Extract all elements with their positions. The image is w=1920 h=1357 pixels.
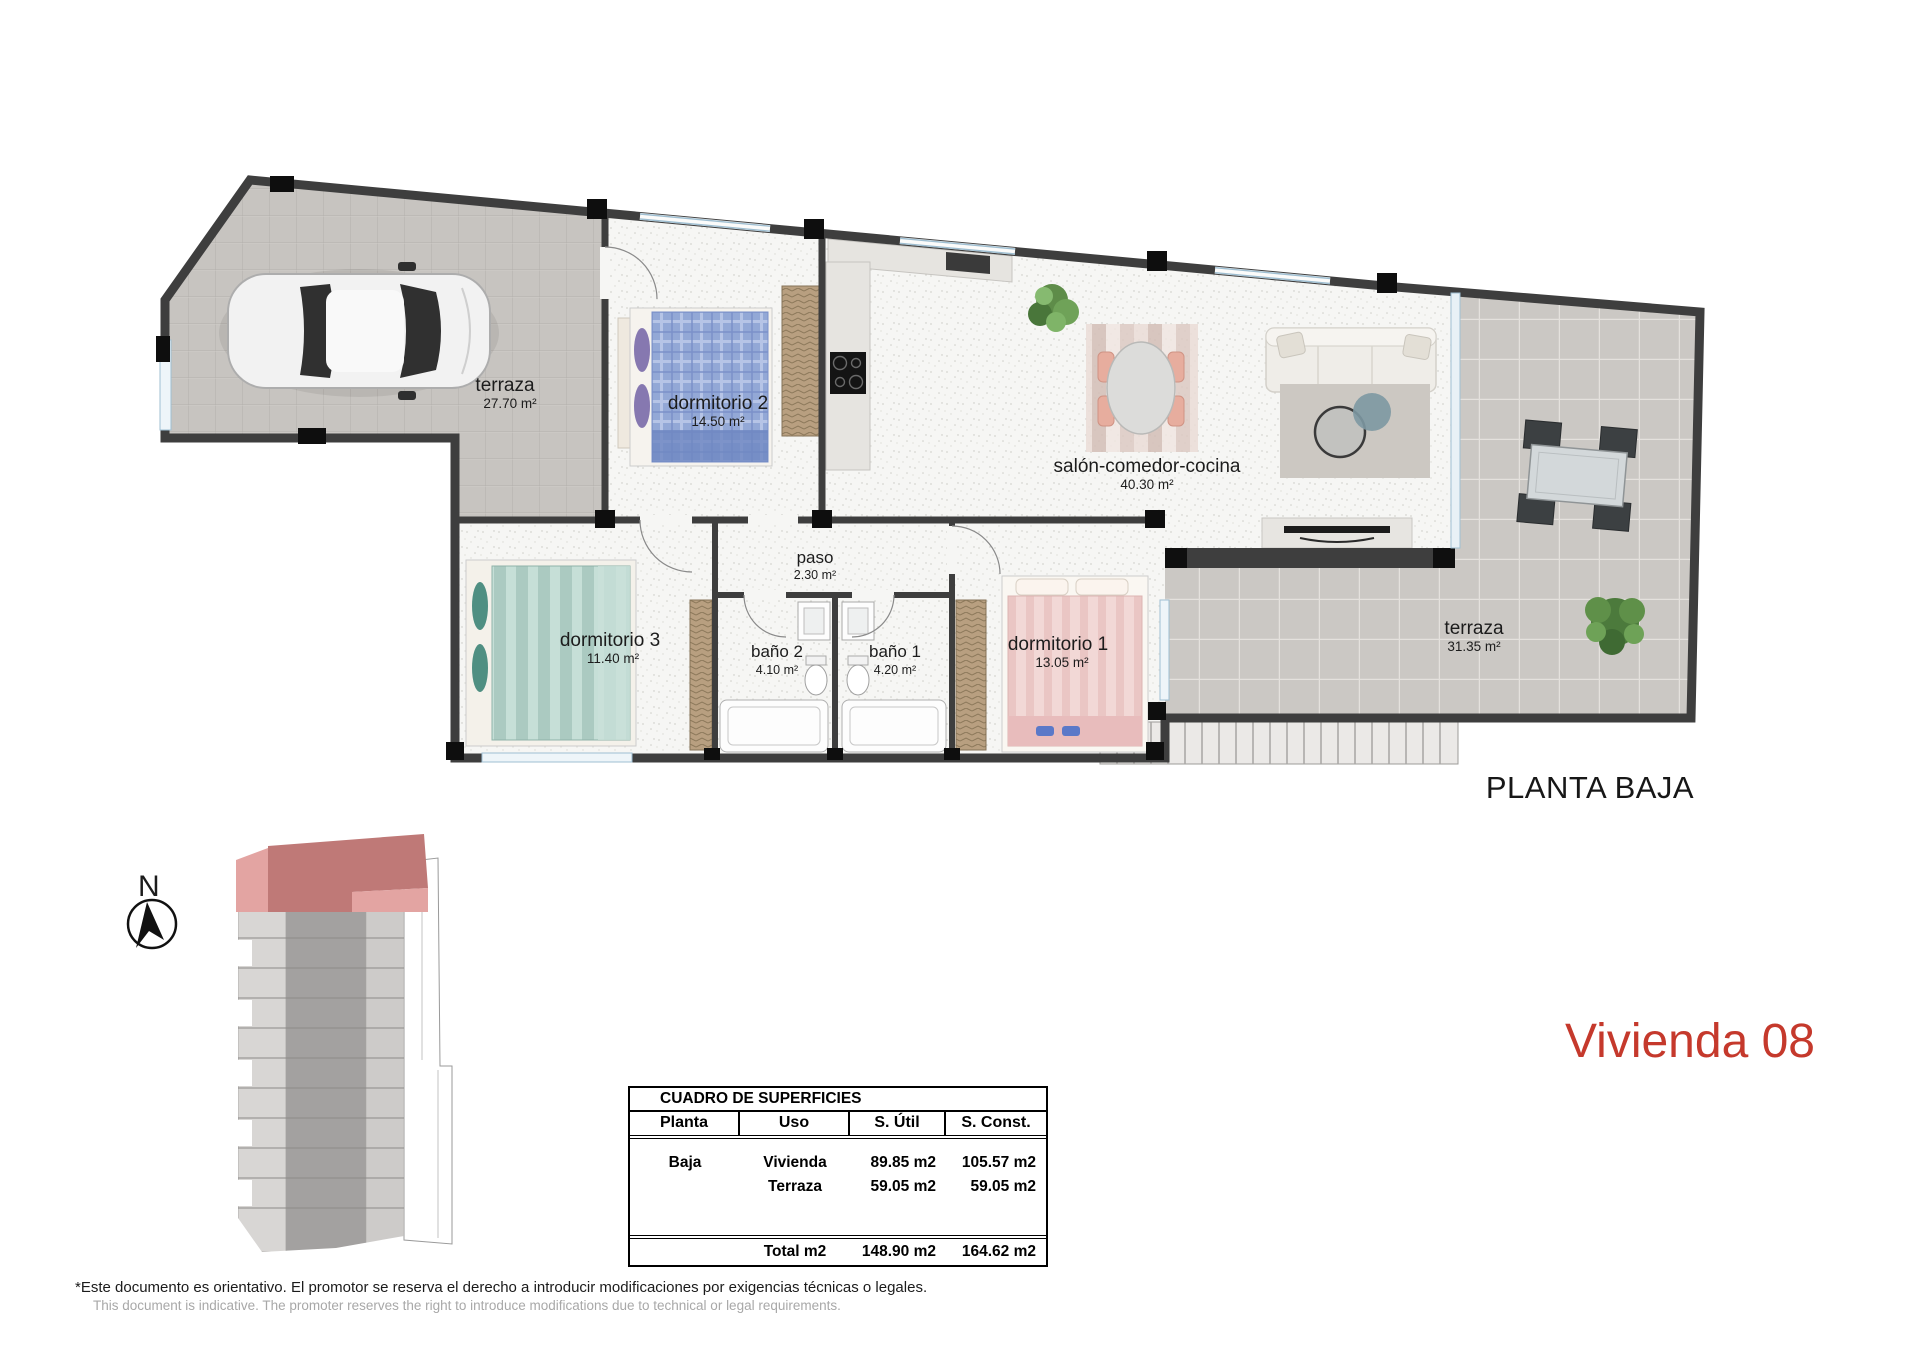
cell-uso: Terraza (740, 1175, 850, 1199)
surfaces-table-total-row: Total m2 148.90 m2 164.62 m2 (630, 1235, 1046, 1265)
label-bano1-area: 4.20 m² (874, 663, 916, 677)
label-bano1-name: baño 1 (869, 642, 921, 661)
floor-plan: terraza 27.70 m² dormitorio 2 14.50 m² s… (156, 176, 1700, 764)
label-dormitorio3-area: 11.40 m² (587, 651, 640, 666)
header-sutil: S. Útil (850, 1112, 946, 1135)
label-salon-name: salón-comedor-cocina (1054, 456, 1241, 477)
cell-planta: Baja (630, 1151, 740, 1175)
dining-table-set (1098, 342, 1184, 434)
surfaces-table-header: Planta Uso S. Útil S. Const. (630, 1112, 1046, 1139)
sofa (1266, 328, 1436, 392)
total-util: 148.90 m2 (850, 1243, 946, 1261)
wardrobe-dormitorio3 (690, 600, 712, 750)
label-terraza-garage-area: 27.70 m² (483, 396, 537, 411)
wardrobe-dormitorio1 (956, 600, 986, 750)
cell-util: 59.05 m2 (850, 1175, 946, 1199)
plan-title: PLANTA BAJA (1470, 770, 1710, 806)
surfaces-table: CUADRO DE SUPERFICIES Planta Uso S. Útil… (628, 1086, 1048, 1267)
label-dormitorio2-area: 14.50 m² (691, 414, 745, 429)
unit-title: Vivienda 08 (1530, 1014, 1850, 1069)
cell-util: 89.85 m2 (850, 1151, 946, 1175)
disclaimer-es: *Este documento es orientativo. El promo… (75, 1279, 927, 1296)
label-paso-area: 2.30 m² (794, 568, 836, 582)
label-dormitorio1-name: dormitorio 1 (1008, 634, 1108, 655)
label-terraza-right-area: 31.35 m² (1447, 639, 1501, 654)
north-label: N (138, 870, 160, 903)
disclaimer-en: This document is indicative. The promote… (93, 1298, 927, 1313)
cell-const: 105.57 m2 (946, 1151, 1046, 1175)
label-dormitorio1-area: 13.05 m² (1035, 655, 1089, 670)
site-building-strip (238, 905, 404, 1252)
label-paso-name: paso (797, 548, 834, 567)
header-sconst: S. Const. (946, 1112, 1046, 1135)
north-compass: N (128, 870, 176, 948)
total-label: Total m2 (740, 1243, 850, 1261)
table-row: Terraza 59.05 m2 59.05 m2 (630, 1175, 1046, 1199)
page-root: terraza 27.70 m² dormitorio 2 14.50 m² s… (0, 0, 1920, 1357)
table-row: Baja Vivienda 89.85 m2 105.57 m2 (630, 1151, 1046, 1175)
label-bano2-name: baño 2 (751, 642, 803, 661)
total-const: 164.62 m2 (946, 1243, 1046, 1261)
tv-wall (1165, 548, 1455, 568)
label-dormitorio2-name: dormitorio 2 (668, 393, 768, 414)
header-planta: Planta (630, 1112, 740, 1135)
cell-uso: Vivienda (740, 1151, 850, 1175)
tv-console (1262, 518, 1412, 548)
bed-dormitorio2 (618, 308, 772, 466)
side-table (1353, 393, 1391, 431)
surfaces-table-title: CUADRO DE SUPERFICIES (630, 1088, 1046, 1112)
cell-const: 59.05 m2 (946, 1175, 1046, 1199)
disclaimer: *Este documento es orientativo. El promo… (75, 1279, 927, 1313)
car (219, 262, 499, 400)
label-terraza-right-name: terraza (1444, 618, 1504, 639)
label-dormitorio3-name: dormitorio 3 (560, 630, 660, 651)
header-uso: Uso (740, 1112, 850, 1135)
label-bano2-area: 4.10 m² (756, 663, 798, 677)
surfaces-table-body: Baja Vivienda 89.85 m2 105.57 m2 Terraza… (630, 1139, 1046, 1235)
wardrobe-dormitorio2 (782, 286, 820, 436)
site-plot-outline (404, 858, 452, 1244)
site-highlighted-unit (236, 834, 428, 912)
label-salon-area: 40.30 m² (1120, 477, 1174, 492)
label-terraza-garage-name: terraza (475, 375, 535, 396)
site-plan (236, 834, 452, 1252)
